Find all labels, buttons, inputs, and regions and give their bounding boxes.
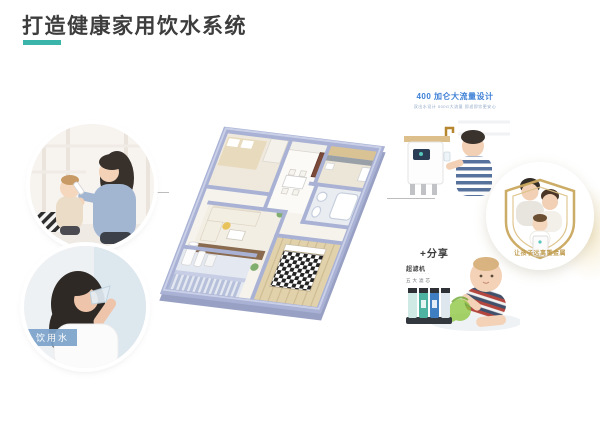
dining-table (282, 175, 306, 189)
floorplan-3d-render (156, 96, 388, 396)
heavy-metal-caption: 让孩子远离重金属 (486, 248, 594, 257)
product-subtitle: 双出水设计 500G大流量 即滤即饮更安心 (400, 104, 510, 110)
title-accent-bar (23, 40, 61, 45)
connector-line-right (387, 198, 435, 199)
photo-woman-drinking: 饮用水 (24, 246, 146, 368)
drinking-water-label: 饮用水 (26, 329, 77, 346)
undersink-purifier-photo (400, 118, 510, 196)
filter-feature-label: 五大滤芯 (406, 278, 432, 284)
page-title: 打造健康家用饮水系统 (22, 10, 247, 40)
family-protection-circle: 让孩子远离重金属 · · · · · · (486, 162, 594, 270)
caption-subtext: · · · · · · (486, 257, 594, 261)
photo-mother-feeding-baby (30, 124, 154, 248)
woman-drinking-illustration (24, 246, 146, 368)
coffee-table (227, 230, 246, 241)
slide: 打造健康家用饮水系统 (0, 0, 600, 428)
mother-baby-illustration (30, 124, 154, 248)
share-label: +分享 (420, 245, 449, 260)
ultrafilter-sublabel: · · · · · · · · (406, 272, 430, 276)
product-title: 400 加仑大流量设计 (400, 91, 510, 102)
product-card-400gallon: 400 加仑大流量设计 双出水设计 500G大流量 即滤即饮更安心 (400, 78, 510, 196)
apartment-floorplan (156, 96, 388, 396)
